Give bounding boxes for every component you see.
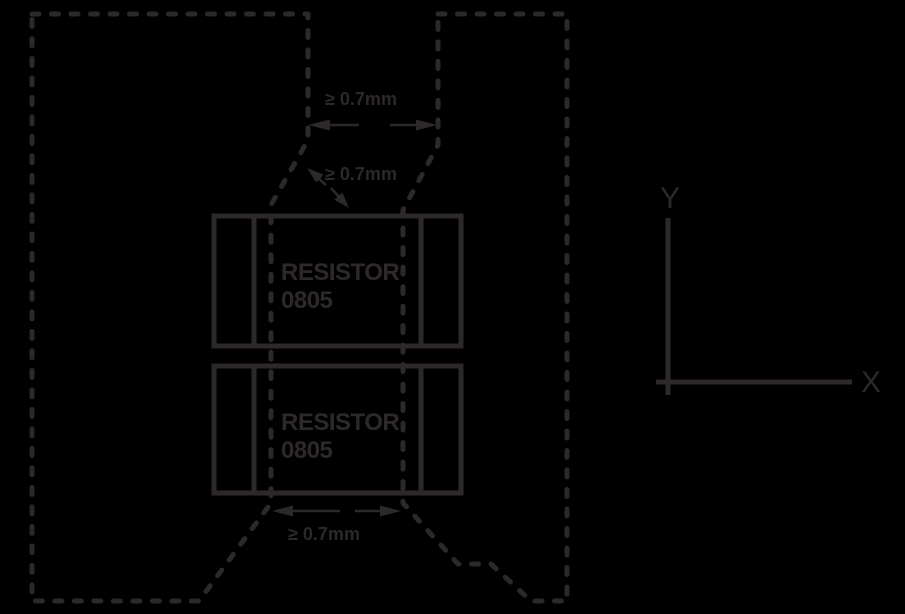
diagram-canvas: ≥ 0.7mm ≥ 0.7mm ≥ 0.7mm RESISTOR 0805 RE… <box>0 0 905 614</box>
top-dim-right-arrowhead <box>416 120 437 131</box>
axis-x-label: X <box>861 366 881 399</box>
top-clearance-label: ≥ 0.7mm <box>325 89 397 109</box>
filled-parts: ≥ 0.7mm ≥ 0.7mm ≥ 0.7mm RESISTOR 0805 RE… <box>272 89 881 544</box>
resistor-bottom-package: 0805 <box>281 437 333 464</box>
bottom-dim-left-arrowhead <box>272 506 293 517</box>
keepout-boundary-left-region <box>32 14 308 601</box>
resistor-top-package: 0805 <box>281 287 333 314</box>
axis-indicator <box>656 218 852 395</box>
axis-y-label: Y <box>660 182 680 215</box>
pcb-clearance-diagram: ≥ 0.7mm ≥ 0.7mm ≥ 0.7mm RESISTOR 0805 RE… <box>0 0 905 614</box>
bottom-clearance-label: ≥ 0.7mm <box>288 524 360 544</box>
middle-clearance-label: ≥ 0.7mm <box>325 164 397 184</box>
resistor-top-name: RESISTOR <box>281 259 399 286</box>
resistor-bottom-name: RESISTOR <box>281 409 399 436</box>
keepout-boundary-right-region <box>403 14 567 601</box>
top-dim-left-arrowhead <box>308 120 330 131</box>
bottom-dim-right-arrowhead <box>380 506 401 517</box>
